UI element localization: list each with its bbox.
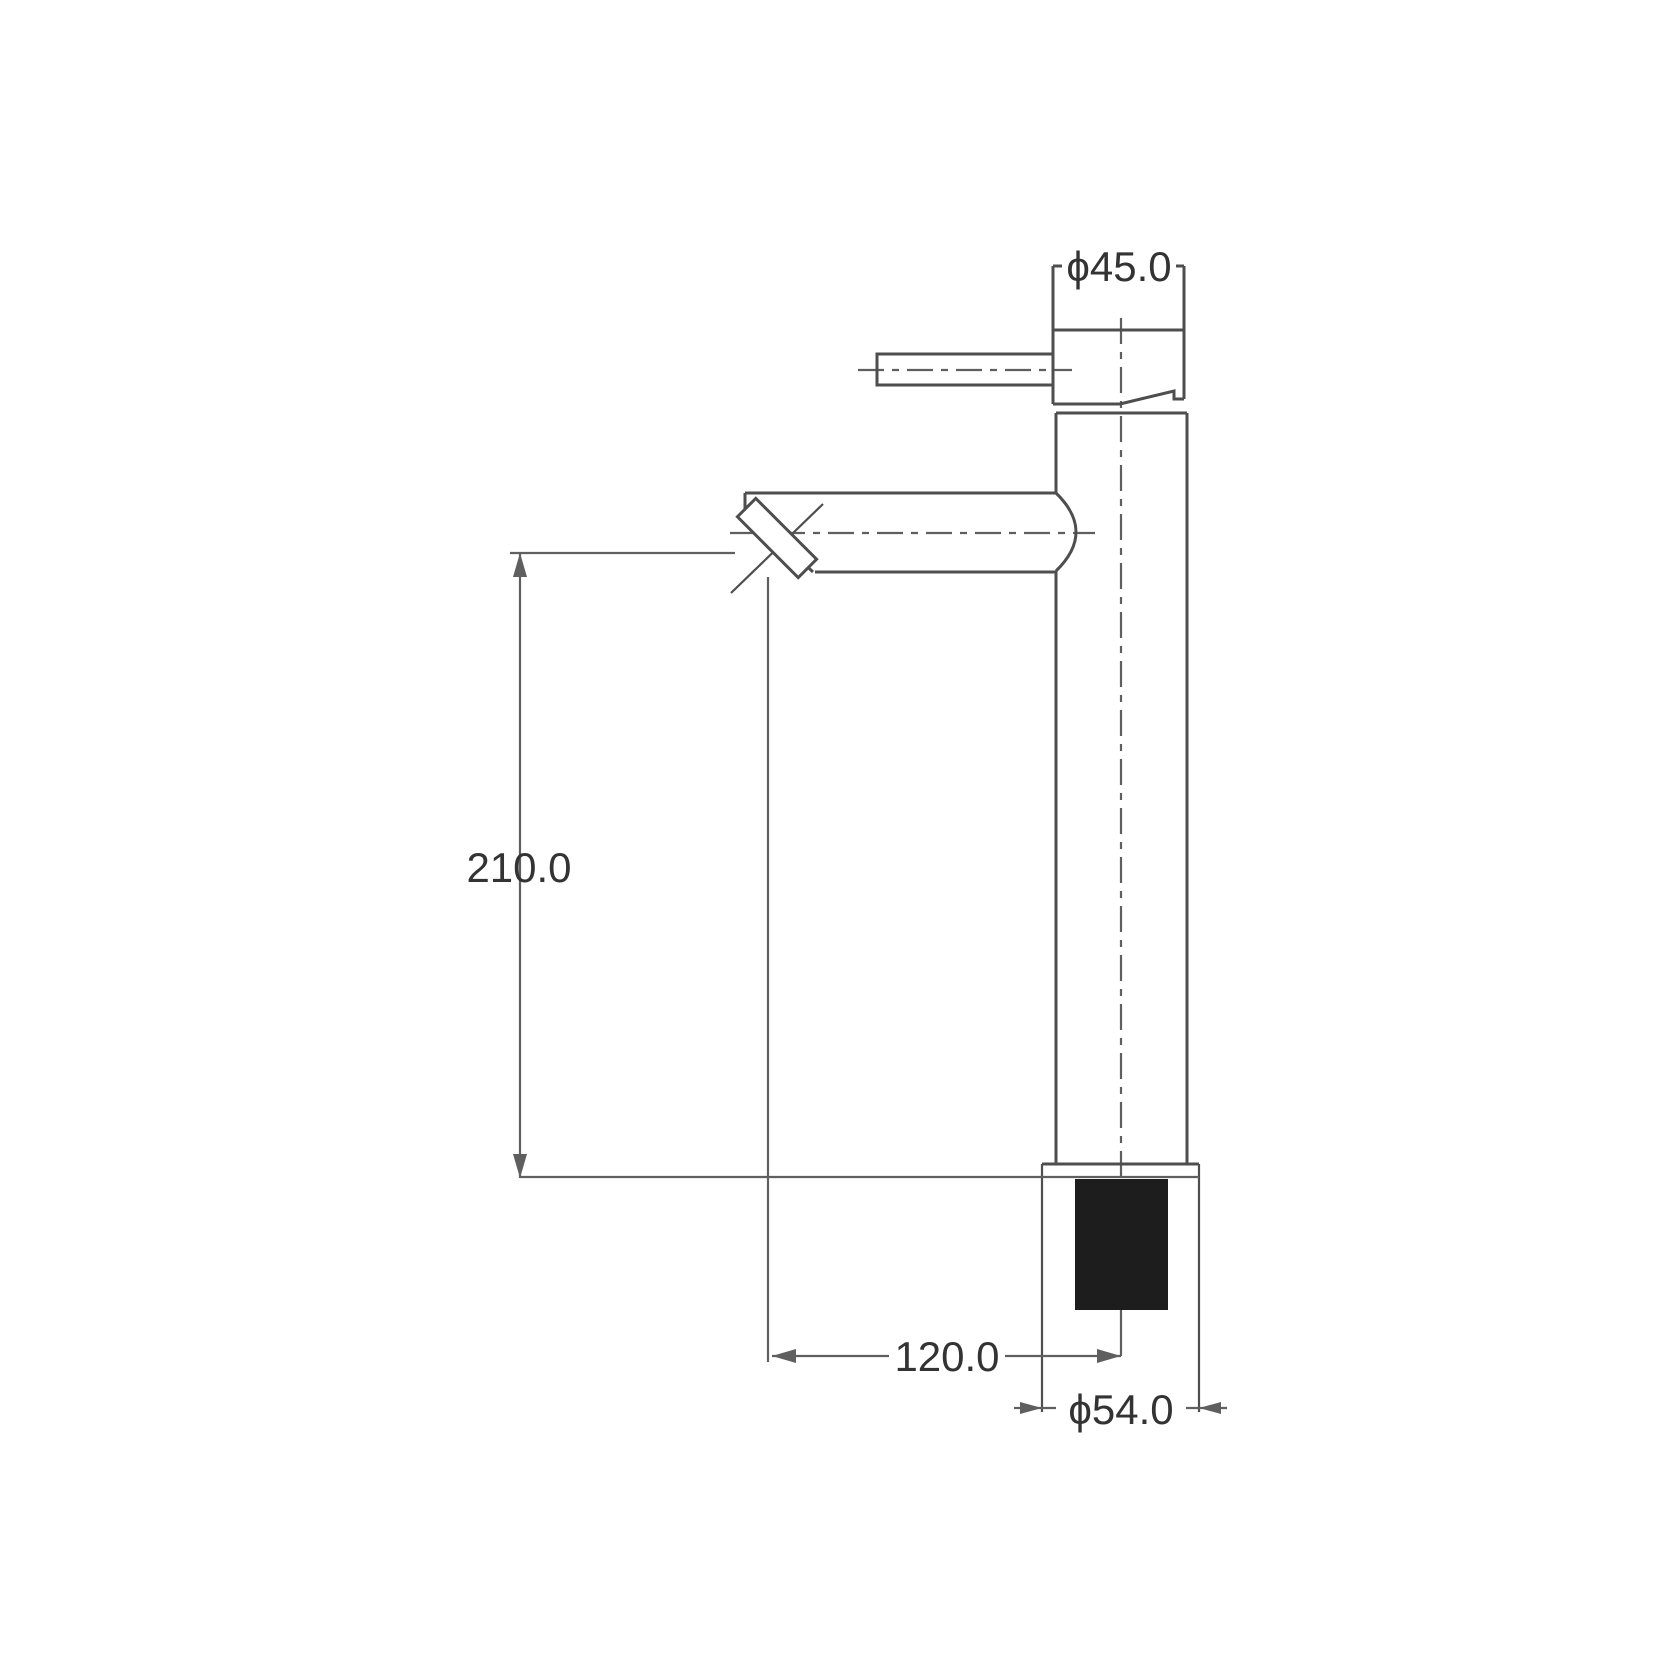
drawing-canvas: 210.0 120.0 ϕ45.0 ϕ54.0 <box>0 0 1676 1676</box>
faucet-technical-drawing: 210.0 120.0 ϕ45.0 ϕ54.0 <box>0 0 1676 1676</box>
centerlines <box>730 318 1121 1179</box>
top-diameter-label: ϕ45.0 <box>1066 243 1171 290</box>
shank-solid-fill <box>1075 1179 1168 1310</box>
shank-section <box>1075 1179 1168 1356</box>
spout <box>731 493 1056 593</box>
reach-arrow-left <box>772 1349 796 1363</box>
base-diameter-arrow-right <box>1199 1402 1221 1414</box>
cap-tilt-wedge <box>1120 391 1184 404</box>
dimension-base-diameter: ϕ54.0 <box>1014 1386 1227 1433</box>
dimension-overall-height: 210.0 <box>466 553 1199 1178</box>
reach-arrow-right <box>1097 1349 1121 1363</box>
dimension-top-diameter: ϕ45.0 <box>1062 243 1176 290</box>
base-diameter-arrow-left <box>1020 1402 1042 1414</box>
height-arrow-down <box>513 1154 527 1178</box>
aerator-tip <box>737 498 816 577</box>
reach-dim-label: 120.0 <box>894 1333 999 1380</box>
base-diameter-label: ϕ54.0 <box>1068 1386 1173 1433</box>
dimension-spout-reach: 120.0 <box>768 577 1121 1380</box>
height-dim-label: 210.0 <box>466 844 571 891</box>
height-arrow-up <box>513 553 527 577</box>
